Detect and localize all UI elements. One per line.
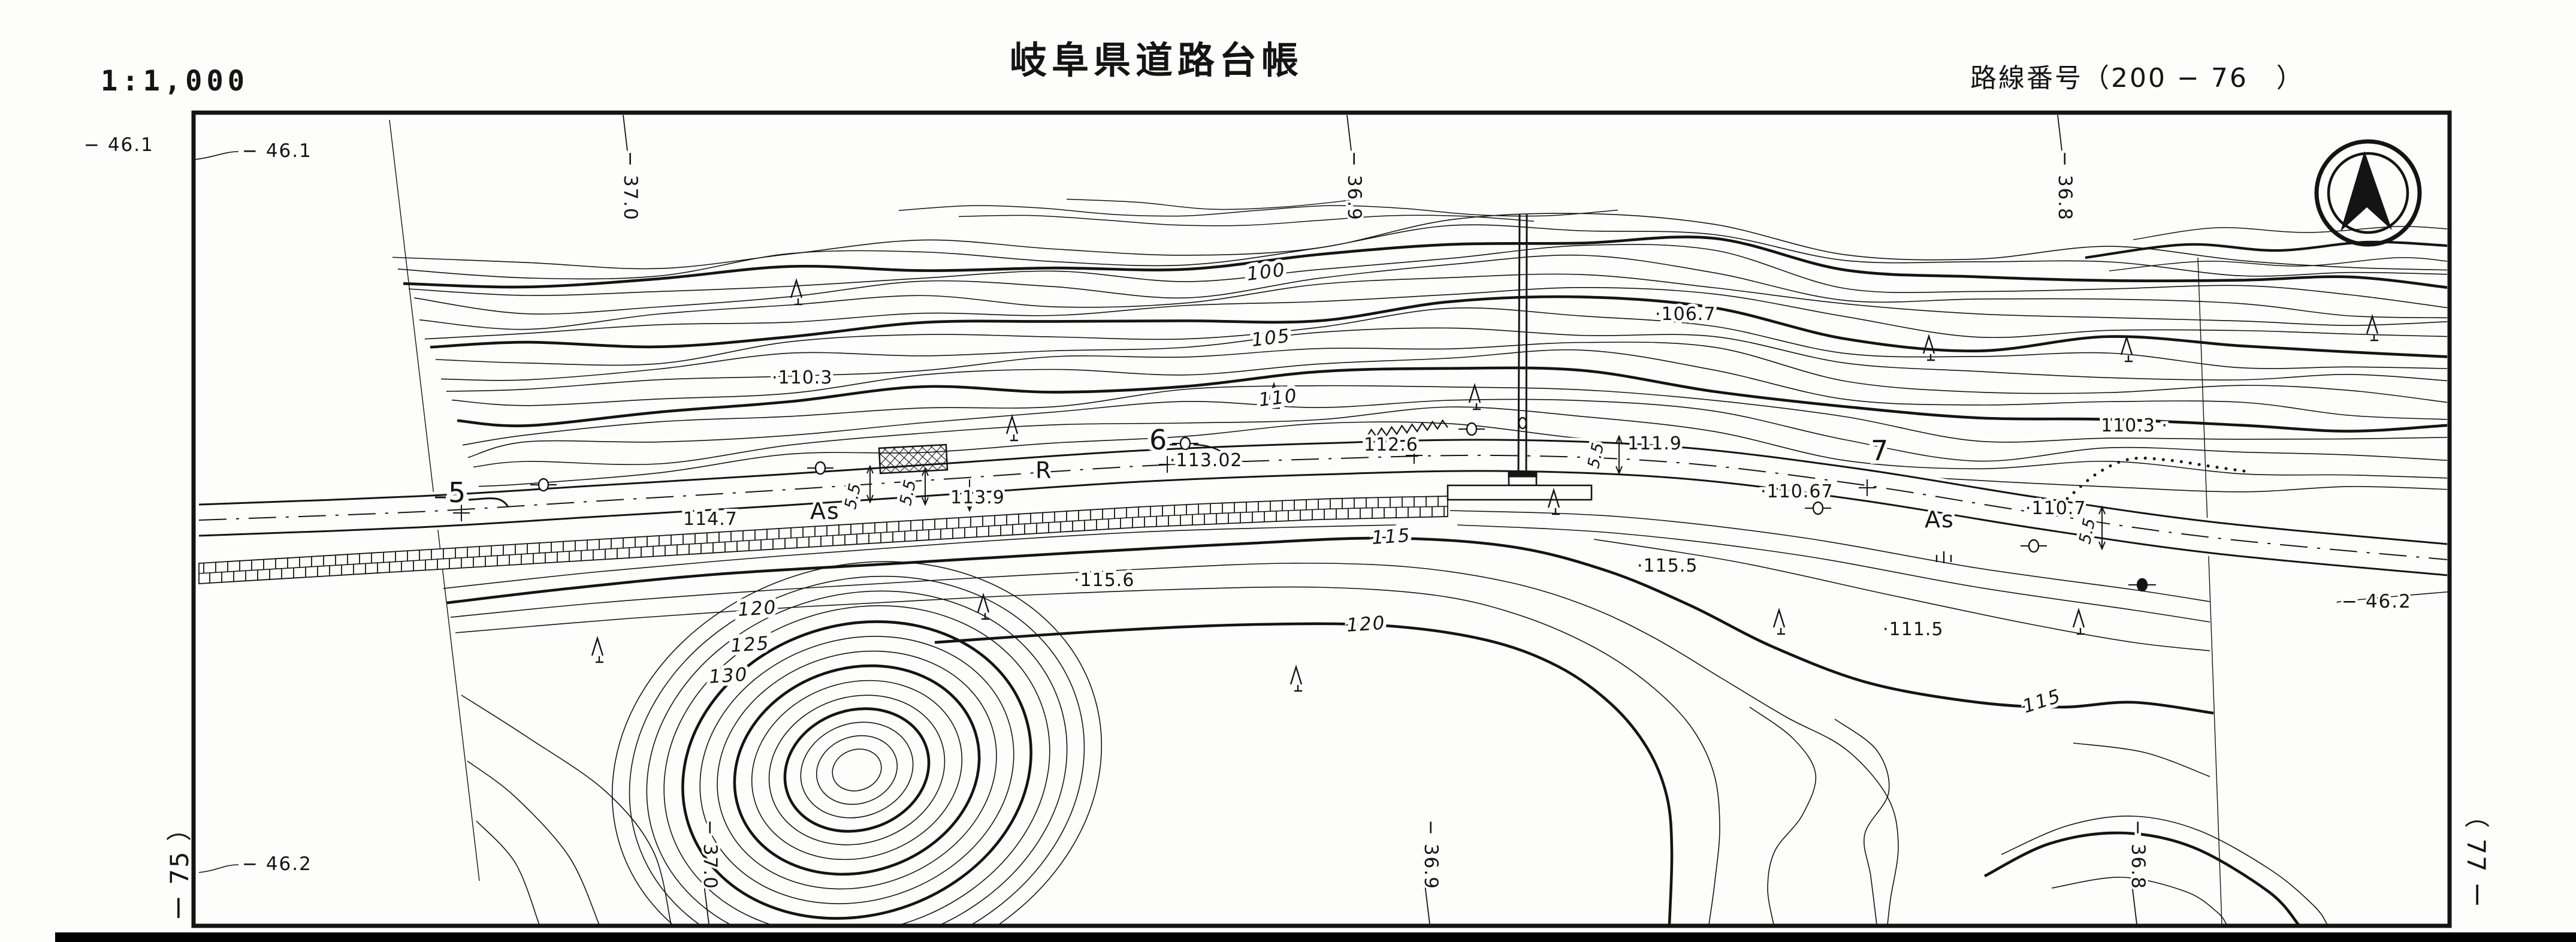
- contour-line: [403, 237, 2448, 287]
- contour-line: [452, 350, 2448, 419]
- building: [879, 445, 947, 473]
- contour-elevation-label: 130: [708, 664, 749, 688]
- utility-pole-icon: [816, 462, 825, 474]
- survey-boundary-right: [2198, 258, 2222, 925]
- grid-coordinate-label: − 37.0: [620, 151, 641, 221]
- spot-elevation: ·115.5: [1637, 555, 1698, 576]
- station-number: 5: [448, 476, 466, 509]
- contour-line: [1067, 199, 1354, 209]
- spot-elevation: ·110.7: [2025, 498, 2086, 519]
- contour-line: [476, 821, 539, 925]
- tree-icon: [1291, 667, 1302, 691]
- scan-edge-bar: [55, 932, 2576, 942]
- coordinate-leader: [199, 865, 238, 872]
- utility-pole-icon: [1180, 437, 1190, 449]
- tree-icon: [2367, 316, 2378, 340]
- contour-line: [425, 288, 2448, 339]
- contour-line: [467, 761, 599, 925]
- contour-elevation-label: 100: [1246, 259, 1287, 285]
- contour-line: [1750, 707, 1816, 925]
- map-interior: [199, 120, 2448, 942]
- contour-ring: [686, 615, 1028, 924]
- utility-pole-icon: [1813, 502, 1823, 514]
- grid-coordinate-label: − 36.9: [1343, 151, 1365, 221]
- contour-line: [455, 587, 1720, 925]
- station-number: 6: [1149, 424, 1167, 456]
- grid-tick-bottom: [2132, 884, 2137, 924]
- grid-tick-top: [623, 115, 628, 156]
- utility-pole-icon: [1467, 423, 1476, 435]
- contour-line: [409, 244, 2448, 308]
- grid-coordinate-label: − 36.8: [2127, 820, 2149, 890]
- spot-elevation: 112.6: [1364, 434, 1418, 455]
- contour-line: [446, 342, 2448, 403]
- tree-icon: [592, 638, 603, 662]
- contour-ring: [769, 690, 945, 850]
- contour-line: [398, 225, 2448, 279]
- compass-needle: [2341, 151, 2392, 231]
- tree-icon: [1007, 416, 1018, 440]
- coordinate-leader: [195, 152, 238, 159]
- dotted-footpath: [2067, 458, 2252, 499]
- contour-line: [2085, 242, 2448, 258]
- tree-icon: [791, 280, 802, 304]
- station-number: 7: [1871, 434, 1888, 467]
- contour-ring: [665, 596, 1049, 942]
- grid-tick-bottom: [1425, 884, 1430, 924]
- contour-ring: [788, 708, 925, 832]
- coordinate-label: − 46.1: [242, 140, 312, 162]
- north-arrow-icon: [2317, 141, 2420, 244]
- spot-elevation: ·110.3: [772, 367, 832, 388]
- contour-line: [2073, 743, 2210, 777]
- contour-line: [461, 695, 671, 925]
- contour-line: [430, 297, 2448, 357]
- pavement-type-label: As: [810, 498, 840, 524]
- map-canvas: − 37.0− 36.9− 36.8− 37.0− 36.9− 36.8− 46…: [0, 0, 2576, 942]
- contour-elevation-label: 115: [1371, 525, 1412, 549]
- coordinate-label: − 46.2: [2342, 591, 2412, 612]
- spot-elevation: ·115.6: [1074, 570, 1134, 591]
- grid-tick-top: [2058, 115, 2062, 156]
- pavement-type-label: As: [1925, 506, 1955, 533]
- contour-line: [441, 328, 2448, 381]
- grid-coordinate-label: − 37.0: [699, 820, 721, 890]
- spot-elevation: ·110.67: [1760, 481, 1834, 502]
- tree-icon: [1774, 610, 1785, 634]
- pole-line: [1518, 215, 1520, 474]
- contour-line: [419, 274, 2448, 329]
- grid-coordinate-label: − 36.8: [2054, 151, 2076, 221]
- contour-elevation-label: 125: [730, 633, 771, 657]
- contours-lower: [443, 499, 2327, 942]
- coordinate-label: − 46.2: [242, 853, 312, 875]
- road-register-sheet: 1:1,000 岐阜県道路台帳 路線番号（200 − 76 ） ー 75 ） （…: [0, 0, 2576, 942]
- grid-tick-bottom: [704, 884, 709, 924]
- curve-label: R: [1035, 457, 1052, 484]
- contour-ring: [600, 538, 1114, 942]
- tree-icon: [2073, 610, 2085, 634]
- base-step-cap: [1509, 473, 1536, 476]
- coordinate-label: − 46.1: [84, 134, 154, 156]
- contour-elevation-label: 120: [1346, 612, 1387, 636]
- tree-icon: [2121, 337, 2133, 361]
- contour-line: [2001, 816, 2327, 925]
- base-step-lower: [1448, 485, 1591, 500]
- benchmark-icon: [2137, 579, 2147, 591]
- spot-elevation: 113.9: [950, 487, 1005, 508]
- contour-elevation-label: 120: [737, 597, 778, 621]
- tree-icon: [1469, 385, 1481, 409]
- grid-tick-top: [1347, 115, 1352, 156]
- contour-ring: [808, 726, 907, 815]
- spot-elevation: 114.7: [683, 509, 738, 530]
- spot-elevation: ·113.02: [1170, 450, 1243, 471]
- utility-pole-icon: [2029, 540, 2039, 552]
- contour-line: [1835, 719, 1889, 925]
- spot-elevation: 111.9: [1627, 433, 1682, 454]
- spot-elevation: ·111.5: [1883, 619, 1943, 640]
- spot-elevation: ·106.7: [1655, 304, 1716, 325]
- contour-ring: [827, 743, 887, 797]
- contour-elevation-label: 115: [2020, 685, 2064, 717]
- contour-elevation-label: 105: [1251, 325, 1292, 351]
- utility-pole-icon: [539, 479, 548, 491]
- pole-line: [1526, 215, 1527, 474]
- contour-ring: [750, 673, 965, 867]
- spot-elevation: 110.3 ·: [2101, 415, 2168, 436]
- building-footprint: [879, 445, 947, 473]
- contour-line: [935, 624, 1672, 925]
- contour-line: [451, 563, 1898, 925]
- grid-coordinate-label: − 36.9: [1420, 820, 1442, 890]
- contour-line: [392, 213, 2448, 270]
- pole-fitting: [1519, 418, 1526, 428]
